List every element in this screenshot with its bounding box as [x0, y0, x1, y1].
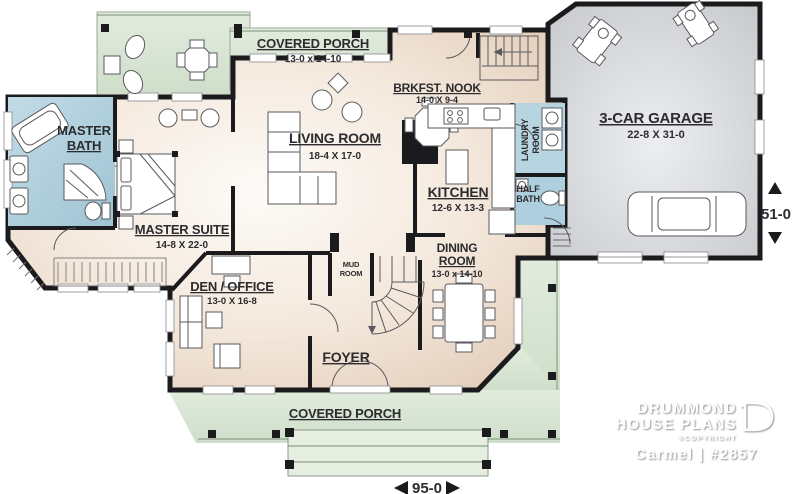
label-mud-1: MUD — [343, 260, 360, 269]
label-master-bath-2: BATH — [67, 138, 101, 153]
label-laundry-1: LAUNDRY — [520, 119, 530, 161]
size-garage: 22-8 X 31-0 — [627, 129, 684, 141]
toilet-icon — [85, 202, 101, 220]
size-master-suite: 14-8 X 22-0 — [156, 240, 209, 251]
arrow-up-icon — [768, 182, 782, 194]
label-garage: 3-CAR GARAGE — [599, 110, 713, 127]
branding-block: DRUMMOND HOUSE PLANS ©COPYRIGHT Carmel |… — [616, 401, 772, 463]
label-dining-2: ROOM — [439, 254, 476, 268]
logo-line1: DRUMMOND — [637, 401, 737, 417]
car-icon — [628, 192, 746, 236]
arrow-right-icon — [446, 481, 460, 494]
size-living-room: 18-4 X 17-0 — [309, 151, 362, 162]
floor-plan-page: COVERED PORCH 13-0 x 14-10 MASTER BATH M… — [0, 0, 800, 494]
plan-name-number: Carmel | #2857 — [635, 447, 758, 463]
label-half-bath-2: BATH — [516, 194, 540, 204]
size-brkfst-nook: 14-0 X 9-4 — [416, 95, 458, 105]
size-kitchen: 12-6 X 13-3 — [432, 203, 485, 214]
label-dining-1: DINING — [437, 241, 478, 255]
label-foyer: FOYER — [322, 349, 369, 365]
size-covered-porch-top: 13-0 x 14-10 — [285, 54, 342, 65]
dimension-width: 95-0 — [394, 480, 460, 494]
front-steps — [285, 428, 491, 476]
label-laundry-2: ROOM — [531, 126, 541, 153]
label-mud-2: ROOM — [340, 269, 363, 278]
label-den-office: DEN / OFFICE — [190, 279, 274, 294]
label-living-room: LIVING ROOM — [289, 130, 381, 146]
floor-plan-canvas: COVERED PORCH 13-0 x 14-10 MASTER BATH M… — [0, 0, 800, 494]
logo-line2: HOUSE PLANS — [616, 417, 737, 433]
label-half-bath-1: HALF — [516, 184, 540, 194]
logo-copyright: ©COPYRIGHT — [679, 434, 737, 442]
depth-value: 51-0 — [761, 206, 791, 223]
label-covered-porch-bottom: COVERED PORCH — [289, 406, 401, 421]
size-den-office: 13-0 X 16-8 — [207, 296, 257, 307]
drummond-logo-icon — [741, 403, 772, 430]
label-master-bath-1: MASTER — [57, 123, 112, 138]
label-covered-porch-top: COVERED PORCH — [257, 36, 369, 51]
arrow-down-icon — [768, 232, 782, 244]
toilet-icon — [541, 191, 559, 205]
label-master-suite: MASTER SUITE — [135, 222, 230, 237]
arrow-left-icon — [394, 481, 408, 494]
label-brkfst-nook: BRKFST. NOOK — [393, 81, 481, 95]
label-kitchen: KITCHEN — [428, 184, 489, 200]
size-dining: 13-0 x 14-10 — [431, 269, 482, 279]
dimension-depth: 51-0 — [761, 182, 791, 244]
width-value: 95-0 — [412, 480, 442, 494]
